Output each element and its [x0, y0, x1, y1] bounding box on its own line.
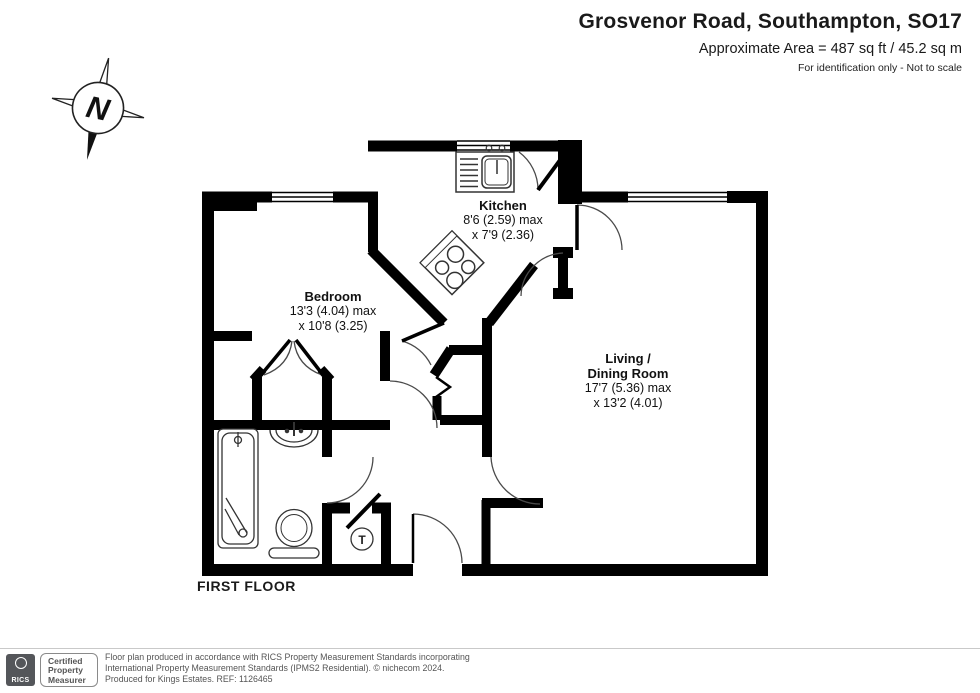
bedroom-door-arc [390, 381, 437, 428]
bedroom-dim2: x 10'8 (3.25) [290, 319, 376, 334]
floorplan-page: T N Grosvenor Road, Southampton, SO17 Ap… [0, 0, 980, 693]
cert-line3: Measurer [48, 676, 97, 685]
living-room-label: Living / Dining Room 17'7 (5.36) max x 1… [585, 351, 671, 411]
rics-logo-icon: RICS [6, 654, 35, 686]
page-title: Grosvenor Road, Southampton, SO17 [579, 10, 962, 34]
certified-property-measurer-badge: Certified Property Measurer [40, 653, 98, 687]
identification-note: For identification only - Not to scale [579, 62, 962, 74]
approximate-area: Approximate Area = 487 sq ft / 45.2 sq m [579, 41, 962, 57]
bath [218, 429, 258, 548]
living-door-arc [491, 457, 540, 504]
header: Grosvenor Road, Southampton, SO17 Approx… [579, 10, 962, 74]
bedroom-label: Bedroom 13'3 (4.04) max x 10'8 (3.25) [290, 289, 376, 334]
footer-line3: Produced for Kings Estates. REF: 1126465 [105, 674, 470, 685]
wardrobe-door-leaves [261, 340, 323, 375]
kitchen-dim2: x 7'9 (2.36) [463, 228, 543, 243]
rics-wordmark: RICS [12, 677, 30, 684]
living-dim2: x 13'2 (4.01) [585, 396, 671, 411]
corridor-door-arc [402, 341, 431, 365]
living-name-line2: Dining Room [585, 366, 671, 381]
kitchen-door-arc [519, 152, 538, 190]
floor-name: FIRST FLOOR [197, 578, 296, 594]
vestibule-stub-bottom [553, 288, 573, 299]
living-window [628, 193, 727, 202]
closet-walls [434, 349, 487, 420]
bedroom-name: Bedroom [290, 289, 376, 304]
compass-icon: N [41, 48, 155, 169]
living-dim1: 17'7 (5.36) max [585, 381, 671, 396]
kitchen-name: Kitchen [463, 198, 543, 213]
footer-divider [0, 648, 980, 649]
bedroom-window [272, 193, 333, 202]
vestibule-stub-top [553, 247, 573, 258]
kitchen-dim1: 8'6 (2.59) max [463, 213, 543, 228]
bathroom-door-arc [327, 457, 373, 503]
toilet [269, 510, 319, 559]
living-name-line1: Living / [585, 351, 671, 366]
tank-symbol: T [351, 528, 373, 550]
floorplan-drawing: T N [0, 0, 980, 693]
corridor-door-leaf [402, 323, 444, 341]
vestibule-living-door-arc [577, 205, 622, 250]
kitchen-label: Kitchen 8'6 (2.59) max x 7'9 (2.36) [463, 198, 543, 243]
closet-bifold-doors [436, 377, 450, 397]
tank-label: T [358, 533, 366, 547]
bedroom-dim1: 13'3 (4.04) max [290, 304, 376, 319]
footer-line1: Floor plan produced in accordance with R… [105, 652, 470, 663]
corner-pier [203, 197, 257, 211]
rics-emblem-icon [15, 657, 27, 669]
footer-disclaimer: Floor plan produced in accordance with R… [105, 652, 470, 685]
wardrobe-door-arcs [264, 341, 322, 375]
footer-line2: International Property Measurement Stand… [105, 663, 470, 674]
front-door-arc [413, 514, 462, 563]
kitchen-sink [456, 145, 514, 192]
